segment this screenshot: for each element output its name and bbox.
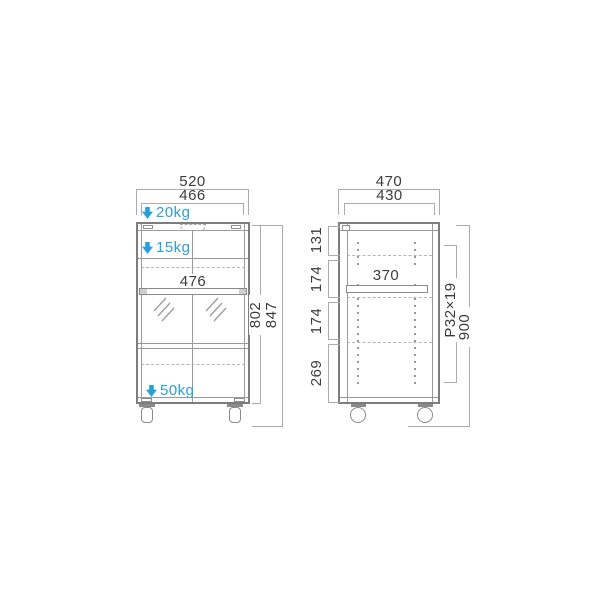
diagram-canvas: 520 466 20kg 15kg 476 — [0, 0, 600, 600]
glass-hatch-icon — [153, 297, 177, 323]
floor-line — [408, 426, 456, 427]
front-shelf-band — [139, 288, 247, 295]
side-bottom-panel-line — [340, 397, 438, 398]
side-shelf — [346, 285, 428, 293]
hinge-plate — [342, 225, 350, 231]
front-shelf-line — [138, 258, 248, 259]
caster-icon — [139, 404, 155, 426]
front-rail-line — [138, 348, 248, 349]
segment-label: 174 — [310, 259, 324, 299]
segment-label: 269 — [310, 353, 324, 393]
shelf-support — [140, 289, 147, 294]
front-shelf-alt-position — [141, 267, 245, 268]
side-total-height-label: 900 — [458, 307, 472, 347]
segment-dim — [328, 226, 340, 256]
segment-label: 131 — [310, 220, 324, 260]
down-arrow-icon — [146, 385, 157, 397]
door-pivot — [234, 398, 245, 402]
segment-label: 174 — [310, 301, 324, 341]
side-back-panel-line — [432, 224, 433, 402]
side-inner-depth-dim: 430 — [344, 203, 435, 215]
body-height-label: 802 — [249, 295, 263, 335]
down-arrow-icon — [142, 242, 153, 254]
front-rail-line — [138, 343, 248, 344]
load-value: 50kg — [160, 384, 195, 398]
front-shelf-alt-position — [141, 364, 245, 365]
front-bottom-panel-line — [138, 397, 248, 398]
side-shelf-alt-position — [347, 297, 432, 298]
dim-label: 430 — [345, 188, 434, 203]
side-shelf-depth-label: 370 — [355, 268, 417, 283]
load-value: 15kg — [156, 241, 191, 255]
load-value: 20kg — [156, 206, 191, 220]
shelf-pin-holes — [414, 242, 416, 388]
shelf-pin-holes — [357, 242, 359, 388]
front-right-inner-wall — [244, 224, 245, 402]
shelf-load-label: 15kg — [142, 241, 191, 255]
down-arrow-icon — [142, 207, 153, 219]
total-height-label: 847 — [265, 295, 279, 335]
cable-cutout — [180, 224, 206, 231]
segment-dim — [328, 260, 340, 298]
segment-dim — [328, 344, 340, 403]
shelf-support — [239, 289, 246, 294]
side-door-panel-line — [347, 224, 348, 402]
front-center-divider — [192, 230, 193, 402]
top-load-label: 20kg — [142, 206, 191, 220]
side-top-panel-line — [340, 230, 438, 231]
side-shelf-alt-position — [347, 255, 432, 256]
side-cabinet-outline — [338, 222, 440, 404]
caster-icon — [227, 404, 243, 426]
side-shelf-alt-position — [347, 342, 432, 343]
glass-hatch-icon — [205, 297, 229, 323]
segment-dim — [328, 302, 340, 340]
bottom-load-label: 50kg — [146, 384, 195, 398]
dim-label: 466 — [142, 188, 243, 203]
door-pivot — [141, 398, 152, 402]
front-shelf-width-label: 476 — [162, 274, 224, 289]
caster-icon — [350, 404, 367, 426]
caster-icon — [417, 404, 434, 426]
hinge-plate — [143, 225, 153, 229]
hinge-plate — [231, 225, 241, 229]
